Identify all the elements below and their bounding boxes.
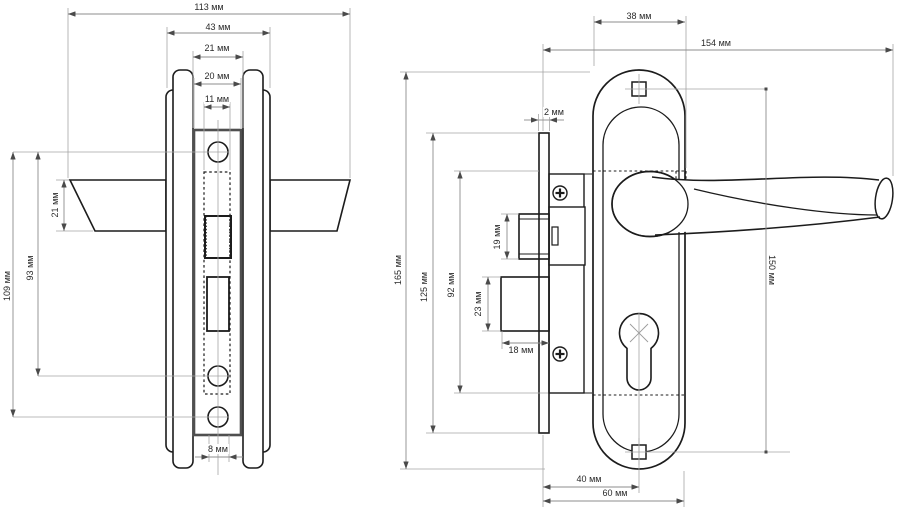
dim-label-strike-width: 11 мм	[204, 94, 230, 104]
screw-head-bottom	[553, 347, 567, 361]
front-view	[13, 8, 350, 475]
dim-label-faceplate-thickness: 2 мм	[543, 107, 565, 117]
technical-drawing: 113 мм 43 мм 21 мм 20 мм 11 мм 21 мм 93 …	[0, 0, 900, 508]
dim-label-lock-body-height: 92 мм	[446, 272, 456, 299]
dim-label-latch-height: 19 мм	[492, 224, 502, 251]
dim-label-outer-width: 43 мм	[205, 22, 232, 32]
latch-bolt	[519, 214, 549, 259]
side-view	[400, 16, 895, 507]
handle-right	[270, 180, 350, 231]
dim-label-bolt-depth: 18 мм	[508, 345, 535, 355]
dim-label-faceplate-width: 20 мм	[204, 71, 231, 81]
dim-label-handle-offset: 60 мм	[602, 488, 629, 498]
dim-label-faceplate-height: 125 мм	[419, 271, 429, 303]
drawing-canvas	[0, 0, 900, 508]
dim-label-bottom-hole: 8 мм	[207, 444, 229, 454]
dim-label-bolt-height: 23 мм	[473, 291, 483, 318]
dim-label-hole-spacing-109: 109 мм	[2, 270, 12, 302]
dim-label-plate-width: 38 мм	[626, 11, 653, 21]
dim-label-plate-height: 165 мм	[393, 254, 403, 286]
handle-left	[70, 180, 166, 231]
dim-label-screw-spacing: 150 мм	[767, 254, 777, 286]
escutcheon-tab-left	[173, 70, 193, 468]
screw-head-top	[553, 186, 567, 200]
dim-label-escutcheon-edge: 21 мм	[204, 43, 231, 53]
latch-housing	[549, 207, 585, 265]
dim-label-hole-spacing-93: 93 мм	[25, 255, 35, 282]
dim-label-total-width: 113 мм	[193, 2, 224, 12]
dim-label-handle-height: 21 мм	[50, 192, 60, 219]
faceplate-front	[194, 130, 241, 435]
escutcheon-tab-right	[243, 70, 263, 468]
dim-label-backset: 40 мм	[576, 474, 603, 484]
deadbolt	[501, 277, 549, 331]
dim-label-total-depth: 154 мм	[700, 38, 732, 48]
